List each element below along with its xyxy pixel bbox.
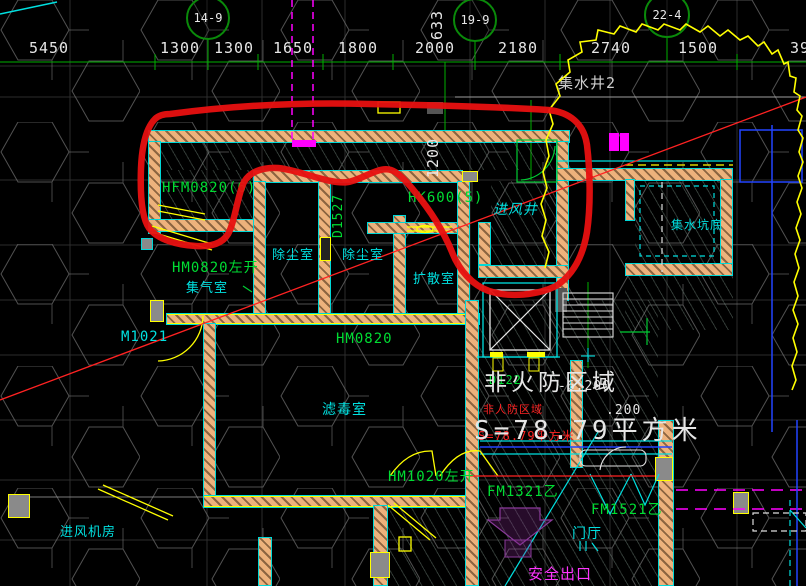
markup-circle-red	[141, 103, 590, 294]
revision-cloud-yellow	[541, 24, 803, 390]
markup-layer	[0, 0, 806, 586]
cad-drawing-canvas[interactable]: 5450130013001650180020002180274015003963…	[0, 0, 806, 586]
